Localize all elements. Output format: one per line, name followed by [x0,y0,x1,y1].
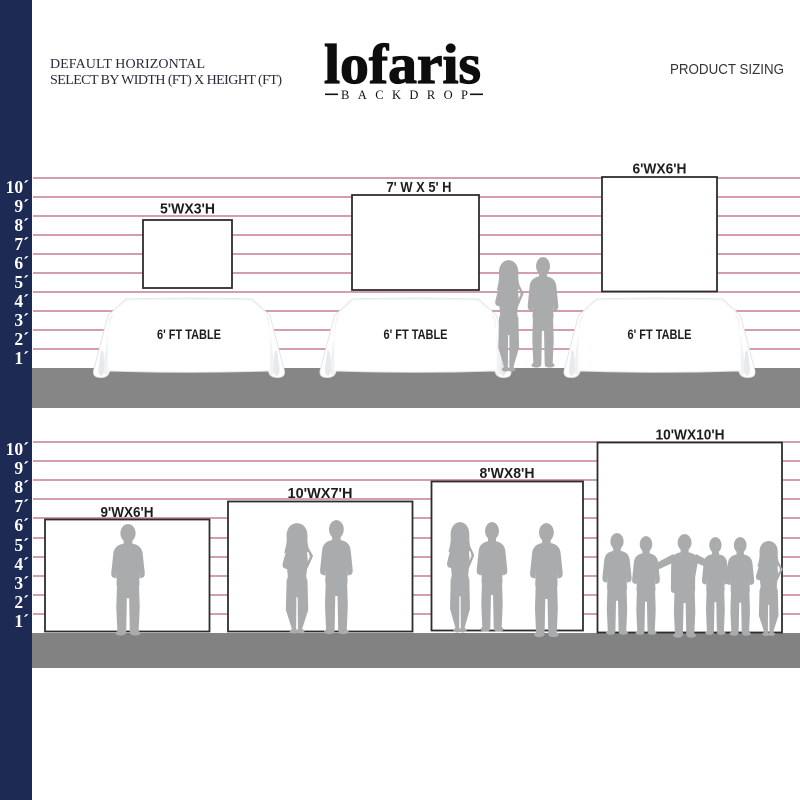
svg-text:7´: 7´ [14,234,29,254]
svg-text:2´: 2´ [14,592,29,612]
svg-text:2´: 2´ [14,329,29,349]
svg-text:10´: 10´ [6,439,30,459]
svg-text:6'WX6'H: 6'WX6'H [633,162,687,178]
svg-text:5´: 5´ [14,535,29,555]
svg-text:1´: 1´ [14,348,29,368]
svg-text:6´: 6´ [14,253,29,273]
svg-text:9'WX6'H: 9'WX6'H [101,505,154,521]
svg-text:9´: 9´ [14,458,29,478]
svg-text:3´: 3´ [14,310,29,330]
svg-text:SELECT BY WIDTH (FT) X HEIGHT: SELECT BY WIDTH (FT) X HEIGHT (FT) [50,73,282,88]
svg-text:10'WX10'H: 10'WX10'H [656,428,725,444]
svg-text:10´: 10´ [6,177,30,197]
svg-text:3´: 3´ [14,573,29,593]
svg-text:5´: 5´ [14,272,29,292]
svg-text:4´: 4´ [14,554,29,574]
svg-text:10'WX7'H: 10'WX7'H [288,486,353,502]
svg-text:8´: 8´ [14,215,29,235]
svg-text:7' W X 5' H: 7' W X 5' H [387,180,452,196]
svg-text:PRODUCT SIZING: PRODUCT SIZING [670,61,784,78]
svg-text:6´: 6´ [14,515,29,535]
svg-text:1´: 1´ [14,611,29,631]
svg-text:DEFAULT HORIZONTAL: DEFAULT HORIZONTAL [50,57,205,72]
svg-text:8'WX8'H: 8'WX8'H [480,466,535,482]
svg-text:9´: 9´ [14,196,29,216]
svg-text:lofaris: lofaris [324,34,481,96]
svg-text:5'WX3'H: 5'WX3'H [160,202,215,218]
svg-text:4´: 4´ [14,291,29,311]
svg-text:8´: 8´ [14,477,29,497]
svg-text:7´: 7´ [14,496,29,516]
